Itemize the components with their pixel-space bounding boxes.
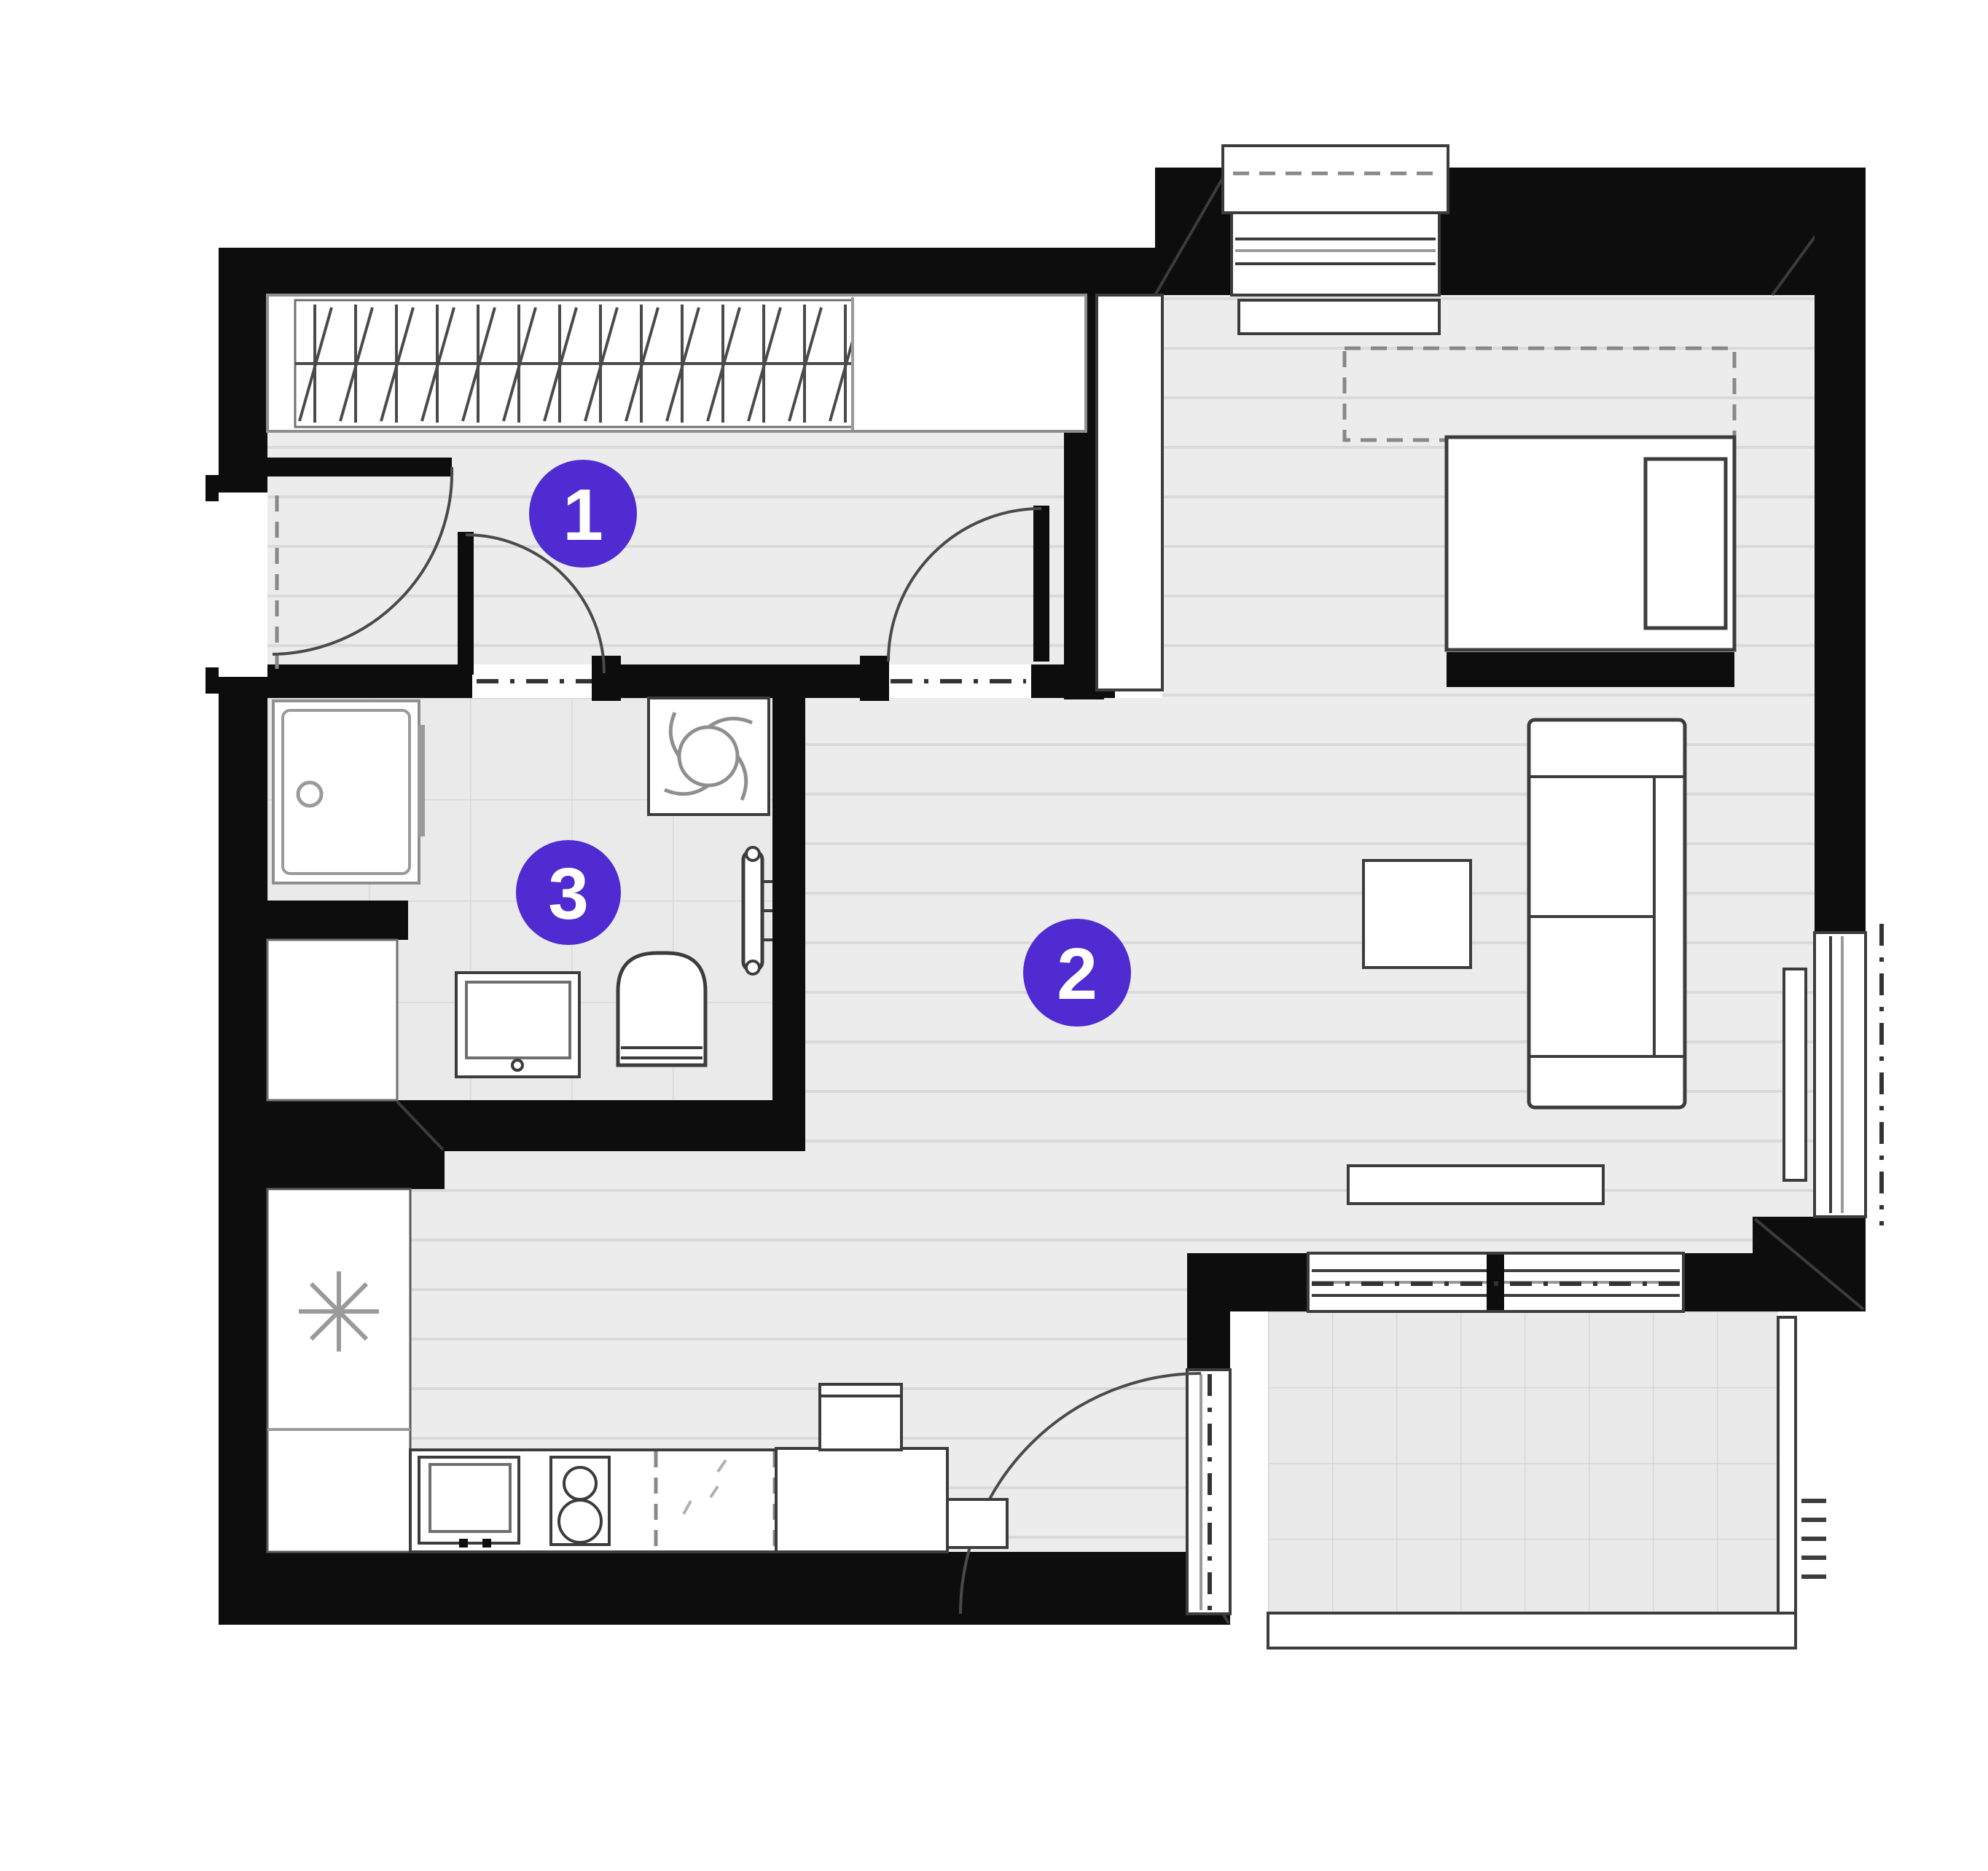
svg-text:2: 2 bbox=[1057, 933, 1097, 1015]
coffee-table bbox=[1363, 860, 1471, 968]
kitchen-counter bbox=[410, 1448, 947, 1552]
living-window-radiator bbox=[1784, 969, 1806, 1180]
shower bbox=[273, 701, 421, 883]
room-marker-2[interactable]: 2 bbox=[1023, 919, 1131, 1027]
wall-bathroom-right bbox=[772, 664, 805, 1151]
pillow bbox=[1645, 459, 1726, 628]
wall-hall-bottom-mid bbox=[595, 664, 871, 698]
wall-balcony-top-right bbox=[1683, 1253, 1753, 1311]
room-marker-3[interactable]: 3 bbox=[516, 840, 621, 945]
fridge-niche bbox=[267, 1189, 410, 1552]
hob bbox=[551, 1457, 609, 1545]
balcony-floor bbox=[1268, 1311, 1778, 1613]
wall-bottom bbox=[219, 1552, 1230, 1625]
hall-wardrobe bbox=[267, 295, 1086, 431]
bed bbox=[1447, 437, 1734, 687]
tv-bench bbox=[1348, 1166, 1603, 1204]
wall-balcony-top-left bbox=[1187, 1253, 1308, 1311]
wall-bathroom-bottom bbox=[219, 1100, 805, 1151]
installation-shaft bbox=[267, 940, 397, 1100]
bedroom-radiator bbox=[1239, 300, 1439, 334]
toilet bbox=[618, 953, 705, 1065]
door-jamb-bath bbox=[592, 656, 621, 701]
door-jamb-living bbox=[860, 656, 889, 701]
kitchen-cabinet-end bbox=[776, 1448, 947, 1552]
bathroom-sink bbox=[456, 973, 579, 1077]
kitchen-bar-table bbox=[820, 1384, 901, 1450]
bed-footboard bbox=[1447, 652, 1734, 687]
wall-shower-shaft bbox=[267, 901, 408, 940]
svg-text:1: 1 bbox=[563, 474, 603, 556]
bedroom-tall-wardrobe bbox=[1097, 295, 1162, 690]
room-marker-1[interactable]: 1 bbox=[529, 460, 637, 568]
floor-plan-page: 1 2 3 bbox=[0, 0, 1988, 1871]
bedroom-window bbox=[1223, 146, 1448, 295]
wall-top-bedroom bbox=[1439, 168, 1866, 295]
floor-plan-canvas: 1 2 3 bbox=[0, 0, 1988, 1871]
wall-fridge-stub bbox=[267, 1151, 445, 1189]
svg-text:3: 3 bbox=[548, 853, 589, 935]
kitchen-sink bbox=[419, 1457, 519, 1548]
living-window bbox=[1815, 924, 1882, 1225]
sofa bbox=[1529, 720, 1685, 1107]
kitchen-stool bbox=[947, 1499, 1007, 1548]
wall-right-upper bbox=[1815, 168, 1866, 933]
washing-machine bbox=[649, 698, 769, 815]
